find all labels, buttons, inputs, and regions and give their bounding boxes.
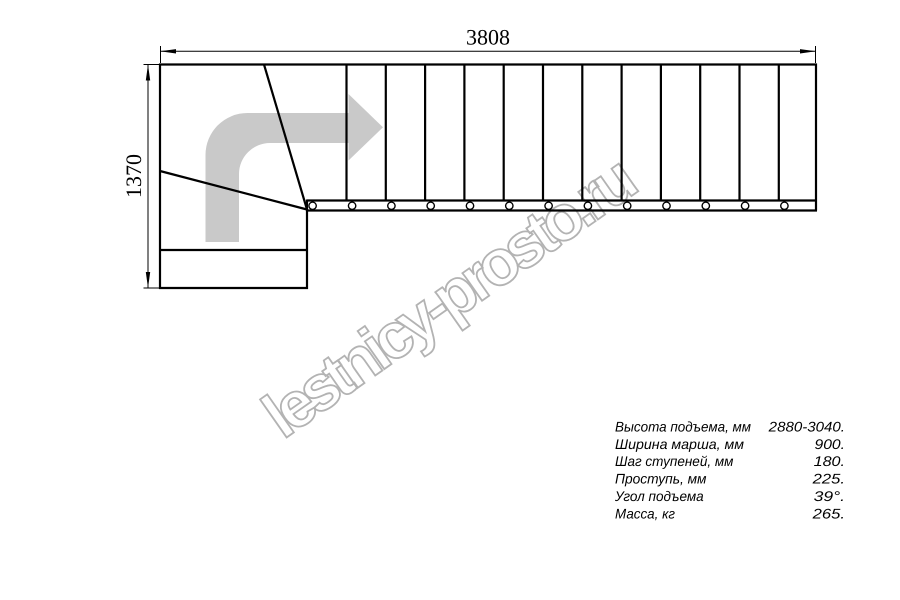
svg-text:3808: 3808 xyxy=(466,25,510,50)
svg-text:Масса, кг: Масса, кг xyxy=(615,505,675,521)
svg-text:39°.: 39°. xyxy=(814,488,845,504)
svg-text:Высота подъема, мм: Высота подъема, мм xyxy=(615,418,751,434)
svg-text:Угол подъема: Угол подъема xyxy=(614,488,704,504)
svg-text:Шаг ступеней, мм: Шаг ступеней, мм xyxy=(615,453,734,469)
svg-text:900.: 900. xyxy=(815,436,846,452)
svg-text:180.: 180. xyxy=(814,453,845,469)
svg-text:Проступь, мм: Проступь, мм xyxy=(615,471,707,487)
svg-text:225.: 225. xyxy=(812,471,845,487)
svg-text:1370: 1370 xyxy=(121,154,146,198)
svg-text:2880-3040.: 2880-3040. xyxy=(768,418,845,434)
svg-text:Ширина марша, мм: Ширина марша, мм xyxy=(615,436,744,452)
svg-text:265.: 265. xyxy=(811,505,845,521)
